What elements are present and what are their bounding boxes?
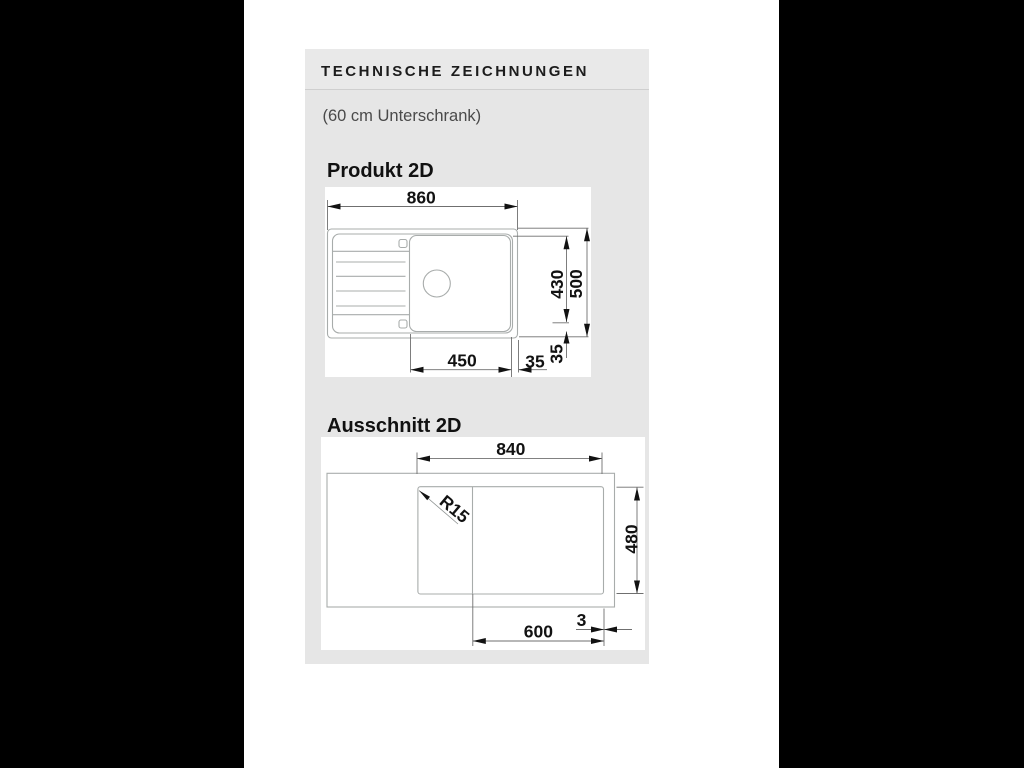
svg-text:600: 600 — [524, 621, 553, 641]
svg-text:480: 480 — [621, 524, 641, 553]
svg-text:840: 840 — [496, 439, 525, 459]
svg-text:860: 860 — [407, 188, 436, 208]
svg-text:3: 3 — [577, 610, 587, 630]
svg-text:R15: R15 — [436, 491, 474, 527]
svg-text:35: 35 — [525, 351, 545, 371]
svg-text:430: 430 — [547, 269, 567, 298]
svg-text:450: 450 — [447, 351, 476, 371]
svg-text:35: 35 — [547, 344, 567, 364]
svg-text:500: 500 — [566, 269, 586, 298]
